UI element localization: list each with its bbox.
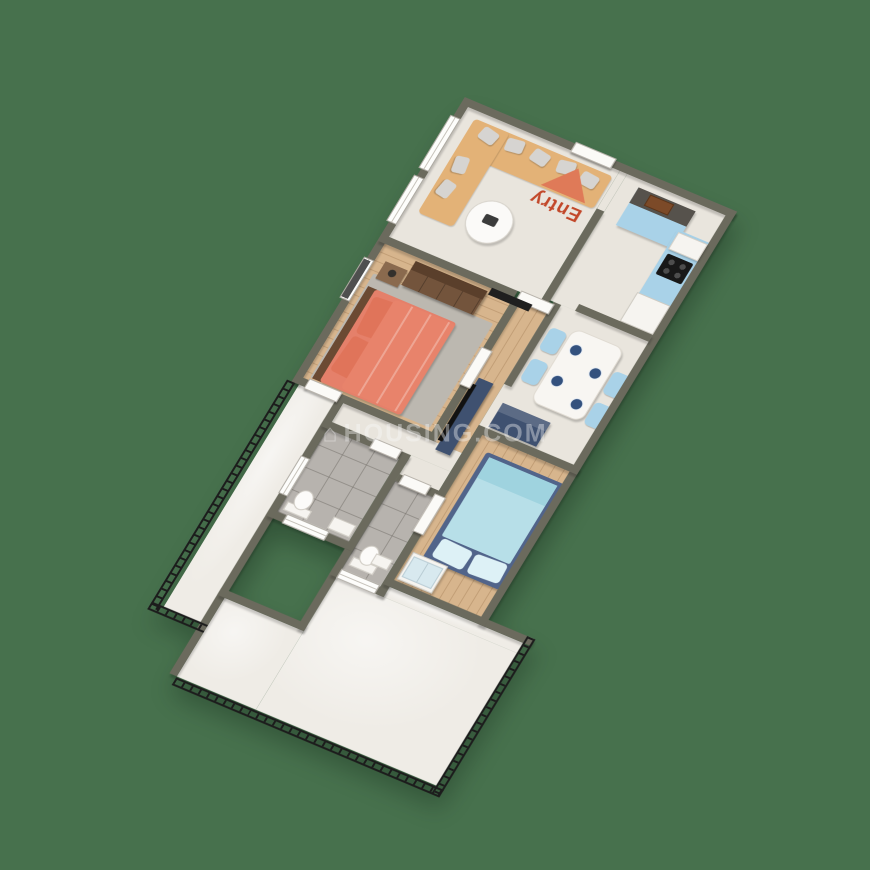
watermark: ⌂ HOUSING.COM: [322, 420, 547, 449]
house-icon: ⌂: [322, 420, 339, 449]
floor-plan-canvas: { "entry_marker": { "label": "Entry", "a…: [0, 0, 870, 870]
watermark-text: HOUSING.COM: [344, 420, 548, 449]
